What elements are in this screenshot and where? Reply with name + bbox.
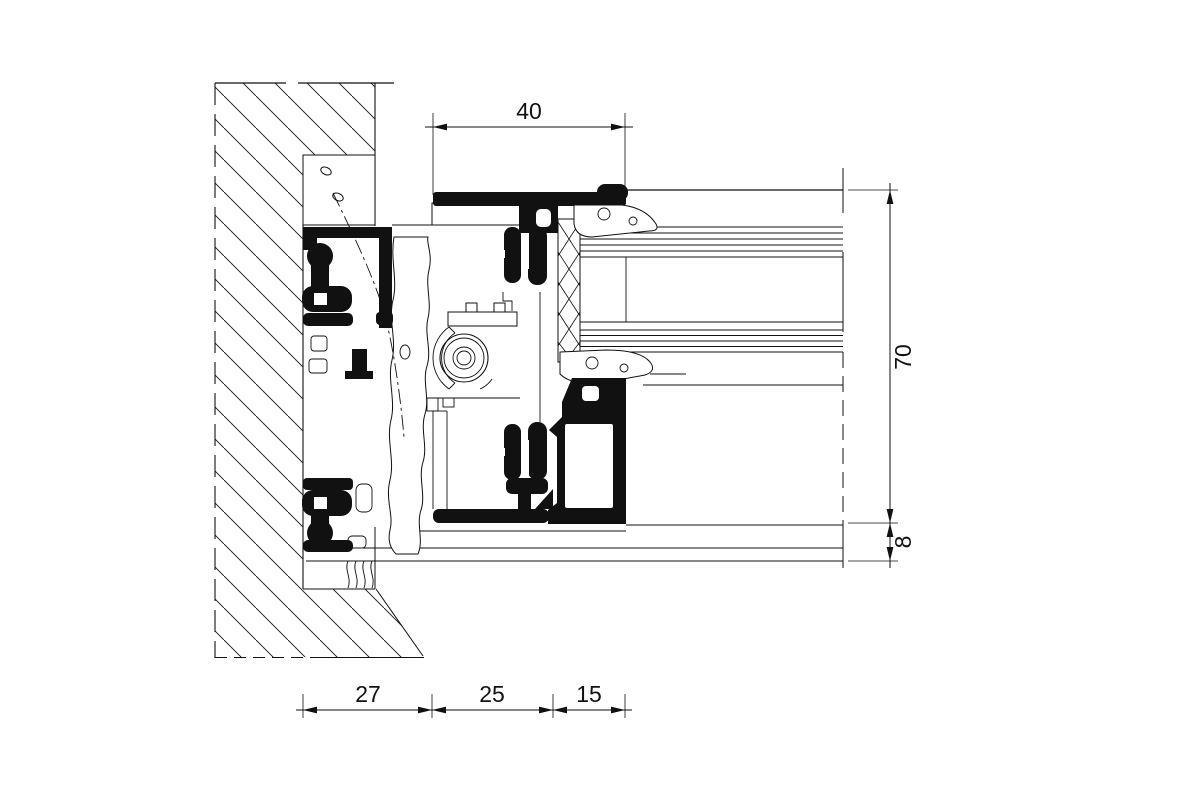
subframe-profile (302, 227, 393, 552)
roller-detail (433, 327, 492, 389)
dim-label-bead-width: 15 (576, 681, 602, 707)
panel-gasket-top (574, 205, 657, 237)
dim-arrow (539, 707, 553, 714)
dim-arrow (418, 707, 432, 714)
dimension-right-height: 70 8 (848, 183, 916, 568)
dim-arrow (887, 523, 894, 537)
dim-label-frame-depth: 25 (479, 681, 505, 707)
dimension-top-width: 40 (425, 98, 633, 195)
dim-arrow (611, 707, 625, 714)
wall-hatch-lower (303, 589, 423, 657)
frame-top-cap (433, 192, 626, 206)
subframe-top-flange (303, 227, 388, 238)
dim-label-top-width: 40 (516, 98, 542, 124)
dim-arrow (303, 707, 317, 714)
dim-label-wall-overlap: 27 (355, 681, 381, 707)
sealing-membrane (347, 561, 373, 588)
dim-label-sill-offset: 8 (890, 536, 916, 549)
foam-seal (388, 237, 430, 554)
panel-bottom-skin (580, 322, 843, 352)
dim-arrow (887, 509, 894, 523)
frame-lower-chamber (427, 292, 540, 509)
gasket-cluster-bottom (302, 478, 353, 552)
glazing-bead (548, 378, 626, 524)
mortar-joint (303, 155, 375, 225)
gasket-cluster-top (302, 243, 353, 326)
drawing-canvas: 40 70 8 27 25 15 (0, 0, 1200, 800)
frame-bottom-cap (433, 509, 549, 523)
lock-keep (448, 303, 517, 326)
dim-arrow (432, 707, 446, 714)
dim-arrow (887, 190, 894, 204)
glazing-gasket (558, 219, 580, 362)
dim-arrow (433, 124, 447, 131)
technical-drawing: 40 70 8 27 25 15 (0, 0, 1200, 800)
dim-label-frame-height: 70 (890, 344, 916, 370)
dimension-bottom-chain: 27 25 15 (296, 681, 632, 718)
dim-arrow (553, 707, 567, 714)
dim-arrow (611, 124, 625, 131)
frame-gaskets-bottom (501, 422, 551, 511)
